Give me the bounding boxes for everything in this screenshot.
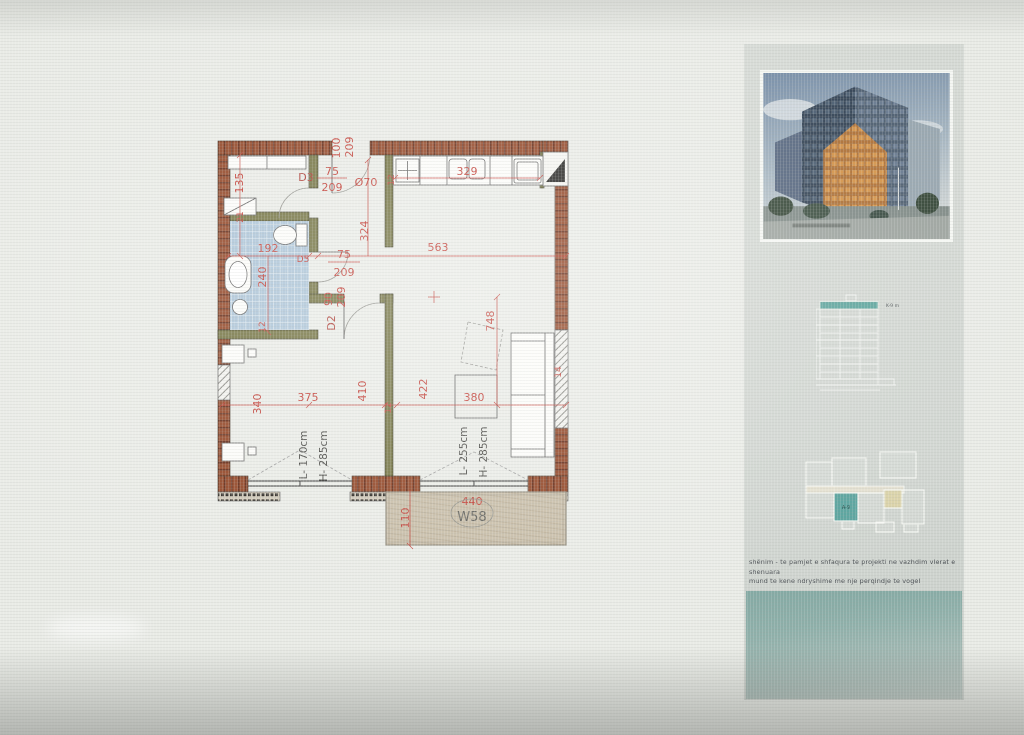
toilet-icon	[274, 224, 308, 246]
dim-bed-width: 375	[298, 391, 319, 404]
corner-shaft	[540, 152, 568, 188]
nightstand-icon	[222, 345, 244, 363]
dim-entry-height: 209	[343, 137, 356, 158]
dim-bath-depth: 240	[256, 267, 269, 288]
photographed-monitor: 100 209 D3 75 209 Ø70 12 329 135 21 192 …	[0, 0, 1024, 735]
dim-d3-width: 75	[325, 165, 339, 178]
dim-entry-width: 100	[330, 138, 343, 159]
dim-balcony-width: 440	[462, 495, 483, 508]
dim-d5-width: 75	[337, 248, 351, 261]
floor-plan-drawing: 100 209 D3 75 209 Ø70 12 329 135 21 192 …	[0, 0, 1024, 735]
dim-bed-wall: 410	[356, 381, 369, 402]
window2-length-label: L- 255cm	[458, 427, 470, 476]
nightstand-icon	[222, 443, 244, 461]
dim-balcony-depth: 110	[399, 508, 412, 529]
left-wall-window	[218, 365, 230, 400]
door-label-d3: D3	[298, 171, 313, 184]
dim-living-depth: 748	[484, 311, 497, 332]
dim-bed-depth: 340	[251, 394, 264, 415]
label-boiler: Ø70	[355, 176, 378, 189]
dim-top-wall: 12	[387, 174, 397, 185]
door-label-d5: D5	[297, 255, 310, 265]
window1-height-label: H- 285cm	[318, 430, 330, 481]
dim-d2-width: 90	[322, 292, 335, 306]
dim-right-wall: 14	[554, 366, 564, 378]
window2-height-label: H- 285cm	[478, 426, 490, 477]
bathtub-icon	[225, 256, 251, 293]
dim-mid-wall: 12	[384, 402, 394, 413]
d2-door-arc	[344, 303, 380, 339]
dim-hall-height: 135	[233, 173, 246, 194]
dim-living-width: 563	[428, 241, 449, 254]
window1-length-label: L- 170cm	[298, 431, 310, 480]
dim-living-len: 422	[417, 379, 430, 400]
sink-icon	[233, 300, 248, 315]
dim-d3-height: 209	[322, 181, 343, 194]
dim-hall-depth: 324	[358, 221, 371, 242]
door-label-d2: D2	[325, 315, 338, 330]
dim-kitchen-run: 329	[457, 165, 478, 178]
balcony-id-label: W58	[457, 510, 486, 525]
dim-d5-height: 209	[334, 266, 355, 279]
right-wall-window	[555, 330, 568, 428]
dim-d2-height: 209	[335, 287, 348, 308]
dim-living-span: 380	[464, 391, 485, 404]
dim-bath-width: 192	[258, 242, 279, 255]
sofa-icon	[511, 333, 554, 457]
dim-tick21: 21	[236, 211, 246, 222]
dim-bath-wall: 12	[258, 321, 268, 332]
